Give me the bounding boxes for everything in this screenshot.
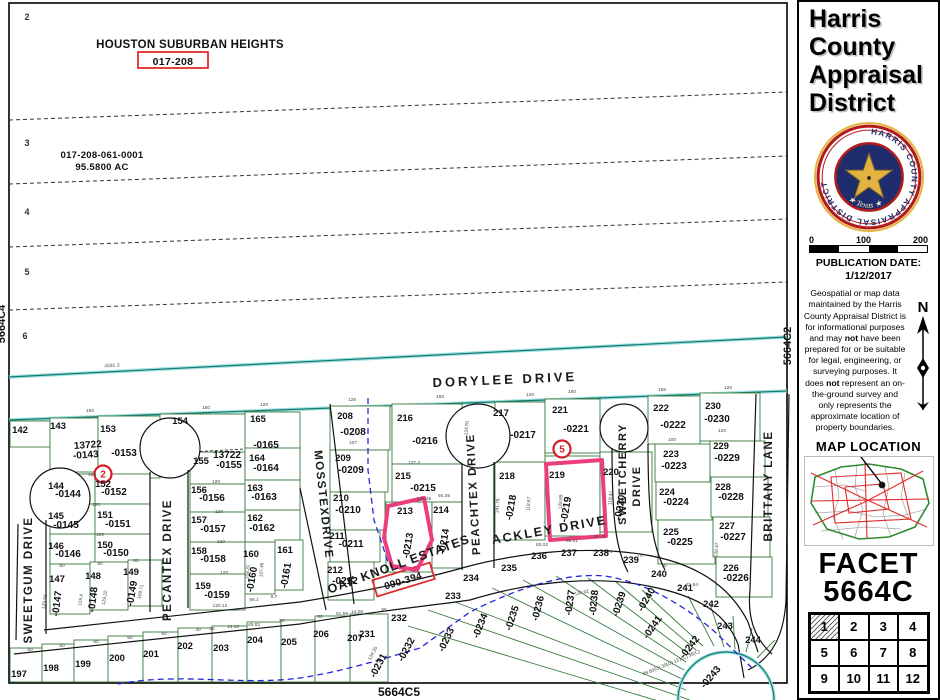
account-label: -0216 xyxy=(412,436,438,447)
dimension-label: 60 xyxy=(127,635,133,641)
dimension-label: 80 xyxy=(97,561,103,567)
account-label: -0164 xyxy=(253,463,279,474)
account-label: -0158 xyxy=(200,554,226,565)
facet-title: FACET 5664C xyxy=(803,551,934,606)
dimension-label: 80.41 xyxy=(566,538,578,544)
lot-label: 147 xyxy=(49,574,65,585)
dimension-label: 60.41 xyxy=(594,534,606,540)
lot-label: 148 xyxy=(85,571,101,582)
facet-index-grid: 1 2 3 4 5 6 7 8 9 10 11 12 xyxy=(808,612,930,694)
annotation-label: 017-208 xyxy=(153,56,194,68)
lot-label: 165 xyxy=(250,414,267,425)
dimension-label: 14.08 xyxy=(351,609,363,615)
street-label: SWEETGUM DRIVE xyxy=(23,516,35,643)
facet-cell[interactable]: 4 xyxy=(898,614,928,640)
dimension-label: 45.82 xyxy=(248,622,260,628)
facet-cell[interactable]: 9 xyxy=(810,666,840,692)
dimension-label: 80 xyxy=(93,639,99,645)
street-label: BRITTANY LANE xyxy=(763,430,775,541)
account-label: -0211 xyxy=(338,539,363,550)
account-label: -0162 xyxy=(249,523,275,534)
lot-label: 230 xyxy=(705,401,721,412)
lot-label: 210 xyxy=(333,493,349,504)
lot-label: 222 xyxy=(653,403,669,414)
title-line: County xyxy=(809,33,934,61)
facet-cell[interactable]: 11 xyxy=(869,666,899,692)
lot-label: 200 xyxy=(109,653,125,664)
publication-date: PUBLICATION DATE: 1/12/2017 xyxy=(803,257,934,282)
map-location-leader-line xyxy=(861,457,881,483)
account-label: -0217 xyxy=(510,430,536,441)
lot-label: 227 xyxy=(719,521,735,532)
dimension-label: 150 xyxy=(436,394,444,400)
lot-label: 234 xyxy=(463,573,480,584)
dimension-label: 60 xyxy=(59,643,65,649)
district-title: Harris County Appraisal District xyxy=(803,5,934,117)
lot-label: 202 xyxy=(177,641,193,652)
lot-label: 215 xyxy=(395,471,412,482)
sidebar: Harris County Appraisal District HARRIS … xyxy=(797,0,940,700)
lot-label: 142 xyxy=(12,425,28,436)
lot-label: 223 xyxy=(663,449,679,460)
dimension-label: 125 xyxy=(348,397,356,403)
lot-label: 209 xyxy=(335,453,351,464)
dimension-label: 150 xyxy=(86,408,94,414)
dimension-label: 51.59 xyxy=(336,611,348,617)
facet-word: FACET xyxy=(803,551,934,579)
scale-bar-segments xyxy=(809,245,928,253)
minimap-minor-roads xyxy=(813,465,927,539)
account-label: -0146 xyxy=(55,549,81,560)
account-label: -0210 xyxy=(335,505,361,516)
dimension-label: 83.02 xyxy=(536,542,548,548)
facet-cell[interactable]: 6 xyxy=(839,640,869,666)
lot-label: 220 xyxy=(603,467,619,478)
account-label: -0227 xyxy=(720,532,746,543)
street-label: DRIVE xyxy=(631,465,643,506)
lot-label: 160 xyxy=(243,549,259,560)
lot-label: 243 xyxy=(717,621,733,632)
lot-label: 218 xyxy=(499,471,515,482)
dimension-label: 120 xyxy=(88,472,96,478)
north-label: N xyxy=(918,299,929,316)
lot-label: 214 xyxy=(433,505,450,516)
dimension-label: 107 xyxy=(349,440,357,446)
account-label: -0238 xyxy=(588,589,601,616)
dimension-label: 137.3 xyxy=(408,460,420,466)
lot-label: 240 xyxy=(651,569,667,580)
publication-label: PUBLICATION DATE: xyxy=(803,257,934,270)
dimension-label: 80 xyxy=(279,618,285,624)
dimension-label: 60 xyxy=(27,647,33,653)
hcad-seal-icon: HARRIS COUNTY APPRAISAL DISTRICT ★ Texas… xyxy=(813,121,925,233)
dimension-label: 120 xyxy=(260,402,268,408)
account-label: -0150 xyxy=(103,548,129,559)
dimension-label: 6.7 xyxy=(271,594,278,600)
lot-label: 244 xyxy=(745,635,762,646)
dimension-label: 70 xyxy=(607,549,613,555)
lot-label: 232 xyxy=(391,613,407,624)
scale-label-100: 100 xyxy=(856,235,871,245)
account-label: -0221 xyxy=(563,424,589,435)
dimension-label: 94.45 xyxy=(438,493,450,499)
lot-label: 217 xyxy=(493,408,509,419)
account-label: -0215 xyxy=(410,483,436,494)
dimension-label: 66.1 xyxy=(249,597,259,603)
dimension-label: 80 xyxy=(133,558,139,564)
lot-label: 143 xyxy=(50,421,66,432)
account-label: -0151 xyxy=(105,519,131,530)
dimension-label: 100 xyxy=(668,437,676,443)
dimension-label: 120 xyxy=(217,539,225,545)
disclaimer-bold: not xyxy=(826,378,839,388)
section-label: 3 xyxy=(24,138,29,148)
facet-cell[interactable]: 2 xyxy=(839,614,869,640)
account-label: -0157 xyxy=(200,524,226,535)
account-label: -0153 xyxy=(111,448,137,459)
lot-label: 161 xyxy=(277,545,294,556)
dimension-label: 150 xyxy=(568,389,576,395)
title-line: District xyxy=(809,89,934,117)
account-label: -0144 xyxy=(55,489,81,500)
account-label: -0152 xyxy=(101,487,127,498)
account-label: -0224 xyxy=(663,497,689,508)
facet-cell[interactable]: 7 xyxy=(869,640,899,666)
account-label: -0228 xyxy=(718,492,744,503)
account-label: -0223 xyxy=(661,461,687,472)
county-locator-map[interactable] xyxy=(804,456,934,546)
account-label: -0156 xyxy=(199,493,225,504)
dimension-label: 30 xyxy=(195,627,201,633)
facet-cell[interactable]: 10 xyxy=(839,666,869,692)
lot-label: 233 xyxy=(445,591,461,602)
dimension-label: 120 xyxy=(215,509,223,515)
lot-label: 197 xyxy=(11,669,27,680)
dimension-label: 70 xyxy=(661,563,667,569)
dimension-label: 120 xyxy=(718,428,726,434)
dimension-label: 32 xyxy=(209,626,215,632)
lot-label: 221 xyxy=(552,405,569,416)
facet-cell[interactable]: 5 xyxy=(810,640,840,666)
dimension-label: 120 xyxy=(96,532,104,538)
lot-label: 149 xyxy=(123,567,139,578)
hcad-facet-map-page: 23456HOUSTON SUBURBAN HEIGHTS017-208017-… xyxy=(0,0,940,700)
lot-label: 213 xyxy=(397,506,413,517)
annotation-label: 017-208-061-0001 xyxy=(61,150,144,161)
dimension-label: 150 xyxy=(202,405,210,411)
facet-number: 5664C xyxy=(803,579,934,607)
account-label: -0165 xyxy=(253,440,279,451)
facet-cell[interactable]: 8 xyxy=(898,640,928,666)
lot-label: 208 xyxy=(337,411,353,422)
account-label: -0230 xyxy=(704,414,730,425)
account-label: -0226 xyxy=(723,573,749,584)
scale-label-200: 200 xyxy=(913,235,928,245)
dimension-label: 71.64 xyxy=(686,582,698,588)
dimension-label: 80 xyxy=(59,563,65,569)
account-label: -0143 xyxy=(73,449,100,462)
account-label: -0163 xyxy=(251,492,277,503)
lot-label: 205 xyxy=(281,637,298,648)
account-label: -0155 xyxy=(216,460,242,471)
lot-label: 199 xyxy=(75,659,91,670)
account-label: -0159 xyxy=(204,590,230,601)
section-label: 5 xyxy=(24,267,29,277)
dimension-label: 120 xyxy=(724,385,732,391)
lot-label: 201 xyxy=(143,649,160,660)
facet-edge-label: 5664C5 xyxy=(378,685,420,699)
account-label: -0222 xyxy=(660,420,686,431)
measurement-label: 4591.3 xyxy=(104,363,120,370)
lot-label: 242 xyxy=(703,599,719,610)
account-label: -0209 xyxy=(338,465,364,476)
lot-label: 155 xyxy=(193,456,210,467)
circled-number-label: 5 xyxy=(559,445,565,456)
account-label: -0208 xyxy=(340,427,366,438)
dimension-label: 120.12 xyxy=(213,603,228,609)
lot-label: 237 xyxy=(561,548,577,559)
lot-label: 219 xyxy=(549,470,565,481)
dimension-label: 120 xyxy=(212,479,220,485)
section-label: 4 xyxy=(24,207,29,217)
section-label: 6 xyxy=(22,331,27,341)
dimension-label: 156 xyxy=(658,387,666,393)
lot-label: 198 xyxy=(43,663,59,674)
publication-value: 1/12/2017 xyxy=(803,270,934,283)
facet-edge-label: 5664C4 xyxy=(0,304,8,343)
lot-label: 236 xyxy=(531,551,547,562)
lot-label: 212 xyxy=(327,565,343,576)
section-label: 2 xyxy=(24,12,29,22)
facet-cell[interactable]: 12 xyxy=(898,666,928,692)
map-location-dot xyxy=(878,482,885,489)
title-line: Harris xyxy=(809,5,934,33)
dimension-label: 120 xyxy=(92,502,100,508)
facet-cell[interactable]: 3 xyxy=(869,614,899,640)
dimension-label: 80 xyxy=(317,614,323,620)
lot-label: 203 xyxy=(213,643,229,654)
north-arrow-icon: N xyxy=(910,298,936,420)
lot-label: 229 xyxy=(713,441,729,452)
account-label: -0145 xyxy=(53,520,79,531)
lot-label: 206 xyxy=(313,629,329,640)
map-location-heading: MAP LOCATION xyxy=(803,439,934,454)
annotation-label: 95.5800 AC xyxy=(75,162,128,173)
dimension-label: 60 xyxy=(161,631,167,637)
parcel-map[interactable]: 23456HOUSTON SUBURBAN HEIGHTS017-208017-… xyxy=(0,0,797,700)
lot-label: 216 xyxy=(397,413,413,424)
facet-cell-current[interactable]: 1 xyxy=(810,614,840,640)
title-line: Appraisal xyxy=(809,61,934,89)
dimension-label: 139.45 xyxy=(417,496,432,502)
disclaimer-text: Geospatial or map data maintained by the… xyxy=(803,288,907,433)
account-label: -0225 xyxy=(667,537,693,548)
street-label: PECANTEX DRIVE xyxy=(162,499,174,621)
lot-label: 154 xyxy=(172,416,189,427)
lot-label: 204 xyxy=(247,635,264,646)
lot-label: 235 xyxy=(501,563,518,574)
dimension-label: 65 xyxy=(381,607,387,613)
dimension-label: 120 xyxy=(526,392,534,398)
account-label: -0229 xyxy=(714,453,740,464)
dimension-label: 120 xyxy=(220,570,228,576)
scale-bar: 0 100 200 xyxy=(803,235,934,253)
facet-edge-label: 5664C2 xyxy=(782,327,794,366)
account-label: -0212 xyxy=(332,576,358,587)
disclaimer-bold: not xyxy=(845,333,858,343)
scale-label-0: 0 xyxy=(809,235,814,245)
dimension-label: 70 xyxy=(637,553,643,559)
lot-label: 153 xyxy=(100,424,116,435)
annotation-label: HOUSTON SUBURBAN HEIGHTS xyxy=(96,39,284,51)
dimension-label: 14.18 xyxy=(227,624,239,630)
lot-label: 231 xyxy=(359,629,376,640)
